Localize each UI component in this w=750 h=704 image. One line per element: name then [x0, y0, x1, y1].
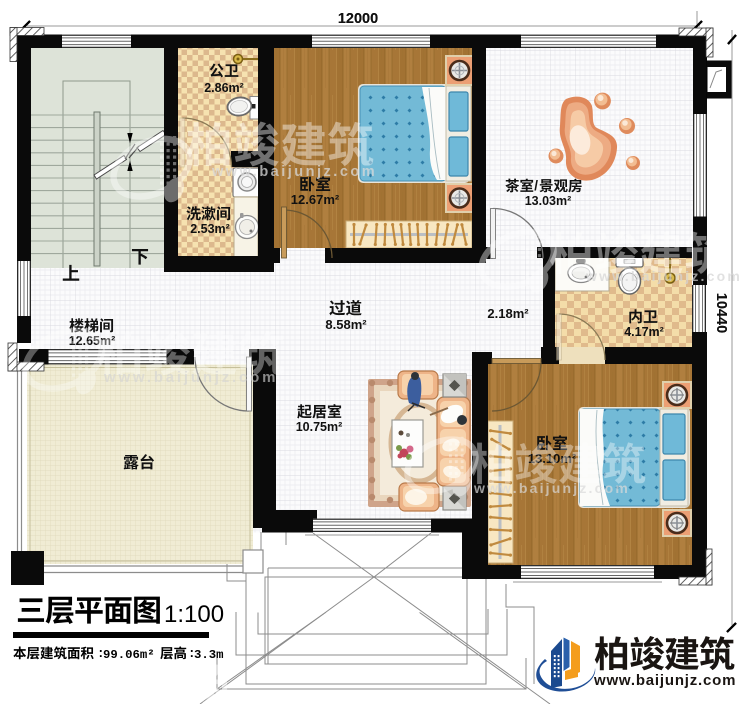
- svg-text:www.baijunjz.com: www.baijunjz.com: [473, 480, 630, 496]
- svg-text:2.18m²: 2.18m²: [487, 306, 529, 321]
- svg-text:1:100: 1:100: [164, 601, 224, 628]
- svg-text:12.67m²: 12.67m²: [291, 192, 340, 207]
- svg-text:www.baijunjz.com: www.baijunjz.com: [103, 369, 278, 386]
- svg-text:4.17m²: 4.17m²: [624, 325, 664, 339]
- svg-text:12000: 12000: [338, 11, 378, 27]
- svg-text:10.75m²: 10.75m²: [296, 420, 343, 434]
- svg-text:www.baijunjz.com: www.baijunjz.com: [585, 268, 742, 284]
- svg-text:www.baijunjz.com: www.baijunjz.com: [593, 672, 736, 689]
- svg-text:www.baijunjz.com: www.baijunjz.com: [211, 164, 377, 180]
- svg-text:8.58m²: 8.58m²: [325, 317, 367, 332]
- svg-text:99.06m²: 99.06m²: [103, 648, 155, 662]
- svg-text:3.3m: 3.3m: [194, 648, 224, 662]
- svg-text:2.86m²: 2.86m²: [204, 81, 244, 95]
- svg-text:13.03m²: 13.03m²: [525, 194, 572, 208]
- svg-text:2.53m²: 2.53m²: [190, 222, 230, 236]
- svg-text:10440: 10440: [713, 293, 729, 333]
- svg-text:/: /: [534, 178, 538, 193]
